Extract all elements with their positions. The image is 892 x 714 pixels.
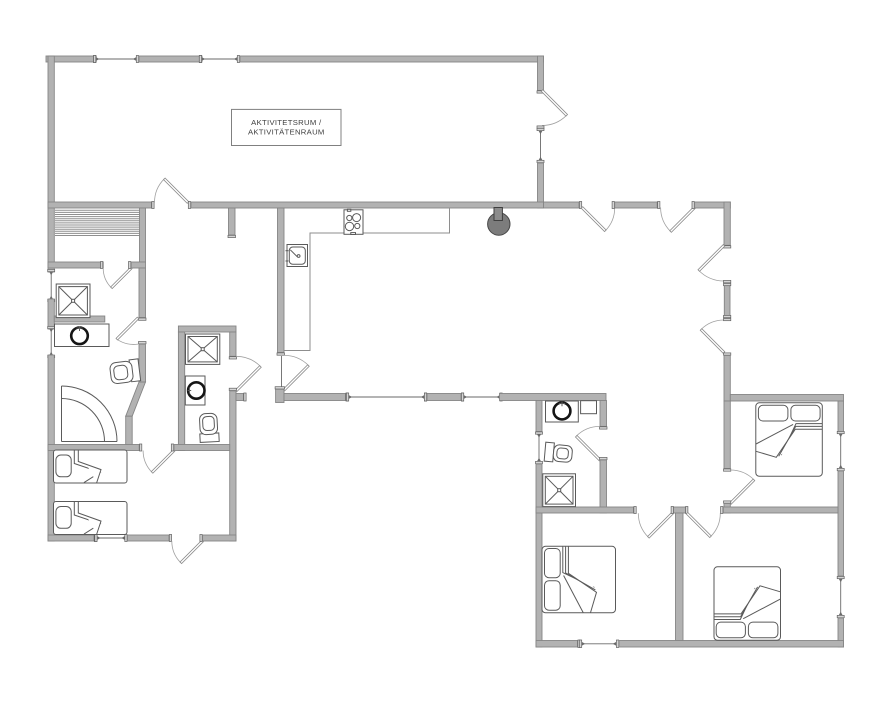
- svg-text:AKTIVITETSRUM /: AKTIVITETSRUM /: [251, 118, 322, 127]
- svg-text:AKTIVITÄTENRAUM: AKTIVITÄTENRAUM: [248, 128, 325, 137]
